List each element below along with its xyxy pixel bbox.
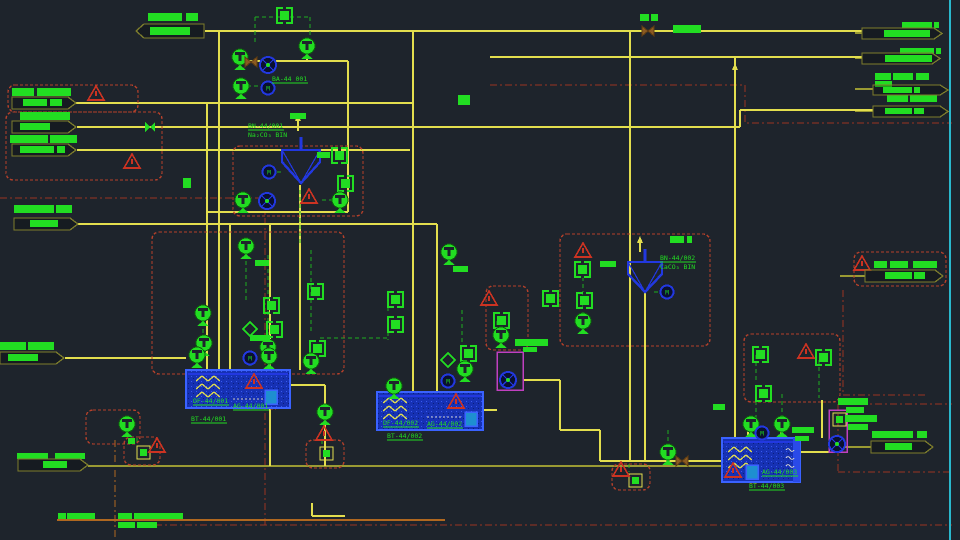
- text-bar: [887, 95, 908, 102]
- text-bar: [148, 13, 182, 21]
- instrument-notch: [344, 175, 347, 179]
- text-bar: [848, 424, 868, 430]
- text-bar: [640, 14, 649, 21]
- powder-bin-hopper[interactable]: [628, 262, 662, 292]
- equipment-tag-label[interactable]: AG-44/003: [762, 468, 797, 476]
- instrument-core: [546, 294, 555, 303]
- instrument-core: [580, 296, 589, 305]
- text-bar: [934, 22, 939, 28]
- text-bar: [846, 407, 864, 413]
- instrument-notch: [581, 274, 584, 278]
- tank-liquid-line: [724, 441, 798, 443]
- text-bar: [128, 438, 135, 444]
- text-bar: [56, 205, 72, 213]
- valve-body: [234, 65, 246, 70]
- instrument-core: [464, 349, 473, 358]
- instrument-notch: [467, 345, 470, 349]
- text-bar: [458, 95, 470, 105]
- connector-text-bar: [57, 146, 65, 153]
- valve-body: [443, 260, 455, 265]
- connector-text-bar: [885, 443, 912, 450]
- valve-stem: [235, 52, 245, 55]
- text-bar: [872, 431, 913, 438]
- local-instrument-core: [323, 450, 330, 457]
- instrument-notch: [581, 261, 584, 265]
- text-bar: [58, 513, 66, 519]
- battery-limit-line: [843, 290, 928, 395]
- valve-stem: [241, 241, 251, 244]
- valve-stem: [460, 364, 470, 367]
- text-bar: [523, 347, 537, 352]
- equipment-tag-label[interactable]: DF-44/002: [383, 419, 418, 427]
- text-bar: [670, 236, 684, 243]
- instrument-notch: [314, 283, 317, 287]
- text-bar: [10, 135, 48, 143]
- valve-stem: [578, 316, 588, 319]
- instrument-notch: [549, 303, 552, 307]
- text-bar: [916, 73, 929, 80]
- instrument-core: [270, 325, 279, 334]
- text-bar: [14, 205, 54, 213]
- connector-text-bar: [914, 108, 924, 114]
- instrument-notch: [762, 385, 765, 389]
- instrument-core: [311, 287, 320, 296]
- valve-stem: [302, 41, 312, 44]
- text-bar: [515, 339, 548, 346]
- text-bar: [250, 335, 270, 341]
- valve-stem: [198, 308, 208, 311]
- text-bar: [792, 427, 814, 433]
- valve-stem: [238, 195, 248, 198]
- text-bar: [651, 14, 658, 21]
- hand-valve-icon[interactable]: [642, 26, 654, 36]
- text-bar: [17, 453, 48, 459]
- text-bar: [186, 13, 198, 21]
- flow-arrow-icon: [637, 236, 643, 243]
- text-bar: [55, 453, 85, 459]
- text-bar: [137, 522, 157, 528]
- connector-text-bar: [914, 87, 920, 93]
- instrument-core: [756, 350, 765, 359]
- instrument-notch: [338, 160, 341, 164]
- flow-arrow-icon: [732, 63, 738, 70]
- instrument-notch: [270, 297, 273, 301]
- connector-text-bar: [885, 55, 932, 62]
- valve-body: [305, 369, 317, 374]
- local-instrument-core: [632, 477, 639, 484]
- connector-text-bar: [20, 146, 54, 153]
- instrument-notch: [583, 305, 586, 309]
- local-instrument-core: [140, 449, 147, 456]
- equipment-tag-label[interactable]: BT-44/001: [191, 415, 226, 423]
- connector-text-bar: [883, 87, 912, 93]
- instrument-core: [578, 265, 587, 274]
- instrument-core: [391, 295, 400, 304]
- connector-text-bar: [884, 30, 930, 37]
- instrument-notch: [316, 340, 319, 344]
- instrument-core: [335, 151, 344, 160]
- instrument-core: [497, 316, 506, 325]
- valve-stem: [199, 338, 209, 341]
- motor-label: M: [248, 356, 252, 363]
- text-bar: [37, 88, 71, 96]
- pump-hub: [265, 199, 269, 203]
- warning-mark: [620, 467, 622, 472]
- text-bar: [917, 431, 927, 438]
- motor-label: M: [267, 170, 271, 177]
- text-bar: [12, 88, 34, 96]
- text-bar: [838, 398, 868, 405]
- valve-stem: [335, 195, 345, 198]
- instrument-notch: [394, 316, 397, 320]
- valve-body: [334, 208, 346, 213]
- text-bar: [875, 73, 891, 80]
- text-bar: [453, 266, 468, 272]
- connector-text-bar: [23, 99, 47, 106]
- instrument-core: [341, 179, 350, 188]
- instrument-notch: [759, 346, 762, 350]
- warning-mark: [488, 296, 490, 301]
- valve-stem: [306, 356, 316, 359]
- pump-hub: [266, 63, 270, 67]
- warning-mark: [582, 248, 584, 253]
- warning-mark: [323, 431, 325, 436]
- instrument-notch: [338, 147, 341, 151]
- warning-mark: [308, 194, 310, 199]
- instrument-notch: [549, 290, 552, 294]
- equipment-tag-label[interactable]: BT-44/003: [749, 482, 784, 490]
- equipment-tag-label[interactable]: BA-44 001: [272, 75, 307, 83]
- equipment-tag-label[interactable]: AG-44/002: [427, 420, 462, 428]
- valve-stem: [122, 419, 132, 422]
- valve-body: [495, 343, 507, 348]
- warning-mark: [156, 443, 158, 448]
- warning-mark: [805, 349, 807, 354]
- instrument-core: [313, 344, 322, 353]
- valve-body: [191, 363, 203, 368]
- instrument-notch: [500, 312, 503, 316]
- instrument-notch: [283, 20, 286, 24]
- instrument-core: [267, 301, 276, 310]
- equipment-tag-label[interactable]: Na₂CO₃ BIN: [248, 131, 287, 139]
- instrument-core: [391, 320, 400, 329]
- text-bar: [67, 513, 95, 519]
- connector-text-bar: [20, 123, 50, 130]
- instrument-notch: [762, 398, 765, 402]
- text-bar: [20, 112, 70, 120]
- instrument-core: [280, 11, 289, 20]
- equipment-tag-label[interactable]: DF-44/001: [193, 397, 228, 405]
- valve-stem: [663, 447, 673, 450]
- text-bar: [687, 236, 692, 243]
- motor-label: M: [446, 379, 450, 386]
- text-bar: [183, 178, 191, 188]
- equipment-tag-label[interactable]: AG-44/001: [233, 402, 268, 410]
- valve-body: [240, 254, 252, 259]
- text-bar: [600, 261, 616, 267]
- text-bar: [28, 342, 54, 350]
- valve-stem: [746, 419, 756, 422]
- instrument-notch: [394, 291, 397, 295]
- valve-body: [319, 420, 331, 425]
- text-bar: [893, 73, 913, 80]
- text-bar: [795, 436, 809, 441]
- instrument-core: [759, 389, 768, 398]
- valve-stem: [263, 342, 273, 345]
- valve-stem: [496, 330, 506, 333]
- instrument-notch: [273, 334, 276, 338]
- hand-valve-icon[interactable]: [676, 456, 688, 466]
- valve-body: [459, 377, 471, 382]
- valve-body: [121, 432, 133, 437]
- warning-mark: [455, 399, 457, 404]
- warning-mark: [732, 468, 734, 473]
- pid-diagram: MMMMMMBA-44 001BN-44/001Na₂CO₃ BINBN-44/…: [0, 0, 960, 540]
- instrument-notch: [822, 362, 825, 366]
- text-bar: [0, 342, 26, 350]
- pump-hub: [835, 442, 839, 446]
- valve-body: [235, 94, 247, 99]
- connector-text-bar: [43, 461, 67, 468]
- pump-hub: [506, 378, 510, 382]
- equipment-tag-label[interactable]: BN-44/001: [248, 122, 283, 130]
- equipment-tag-label[interactable]: BT-44/002: [387, 432, 422, 440]
- valve-stem: [264, 351, 274, 354]
- instrument-notch: [273, 321, 276, 325]
- submerged-pump-icon[interactable]: [465, 412, 477, 426]
- valve-stem: [444, 247, 454, 250]
- powder-bin-hopper[interactable]: [282, 150, 320, 183]
- instrument-notch: [583, 292, 586, 296]
- valve-body: [301, 54, 313, 59]
- valve-stem: [320, 407, 330, 410]
- warning-mark: [131, 159, 133, 164]
- text-bar: [153, 513, 183, 519]
- connector-text-bar: [885, 108, 912, 114]
- submerged-pump-icon[interactable]: [746, 465, 758, 479]
- valve-body: [237, 208, 249, 213]
- motor-label: M: [665, 290, 669, 297]
- connector-text-bar: [150, 27, 190, 35]
- instrument-notch: [270, 310, 273, 314]
- warning-mark: [95, 91, 97, 96]
- valve-body: [776, 432, 788, 437]
- text-bar: [913, 261, 937, 268]
- logic-diamond-icon[interactable]: [243, 322, 257, 336]
- valve-stem: [777, 419, 787, 422]
- tank-liquid-line: [188, 373, 288, 375]
- instrument-notch: [314, 296, 317, 300]
- text-bar: [255, 260, 269, 266]
- revision-cloud: [744, 334, 840, 402]
- instrument-notch: [344, 188, 347, 192]
- text-bar: [290, 113, 306, 119]
- text-bar: [874, 261, 887, 268]
- text-bar: [890, 261, 908, 268]
- motor-label: M: [266, 86, 270, 93]
- text-bar: [134, 513, 153, 519]
- instrument-notch: [822, 349, 825, 353]
- instrument-notch: [759, 359, 762, 363]
- connector-text-bar: [914, 272, 925, 279]
- warning-mark: [253, 379, 255, 384]
- instrument-notch: [283, 7, 286, 11]
- text-bar: [713, 404, 725, 410]
- valve-stem: [192, 350, 202, 353]
- valve-stem: [236, 81, 246, 84]
- hand-valve-icon[interactable]: [245, 57, 257, 67]
- text-bar: [910, 95, 937, 102]
- text-bar: [50, 135, 77, 143]
- cad-canvas: MMMMMMBA-44 001BN-44/001Na₂CO₃ BINBN-44/…: [0, 0, 960, 540]
- instrument-notch: [394, 304, 397, 308]
- logic-diamond-icon[interactable]: [441, 353, 455, 367]
- equipment-tag-label[interactable]: CaCO₃ BIN: [660, 263, 695, 271]
- text-bar: [902, 22, 932, 28]
- instrument-core: [819, 353, 828, 362]
- connector-text-bar: [30, 220, 58, 227]
- connector-text-bar: [50, 99, 62, 106]
- connector-text-bar: [8, 354, 38, 361]
- text-bar: [673, 25, 701, 33]
- text-bar: [936, 48, 941, 54]
- text-bar: [118, 513, 132, 519]
- text-bar: [118, 522, 135, 528]
- valve-stem: [389, 381, 399, 384]
- text-bar: [317, 152, 330, 158]
- motor-label: M: [760, 431, 764, 438]
- equipment-tag-label[interactable]: BN-44/002: [660, 254, 695, 262]
- text-bar: [845, 415, 877, 422]
- connector-text-bar: [885, 272, 912, 279]
- valve-body: [577, 329, 589, 334]
- warning-mark: [861, 261, 863, 266]
- inline-valve-icon[interactable]: [145, 122, 155, 132]
- local-instrument-core: [836, 416, 843, 423]
- instrument-notch: [394, 329, 397, 333]
